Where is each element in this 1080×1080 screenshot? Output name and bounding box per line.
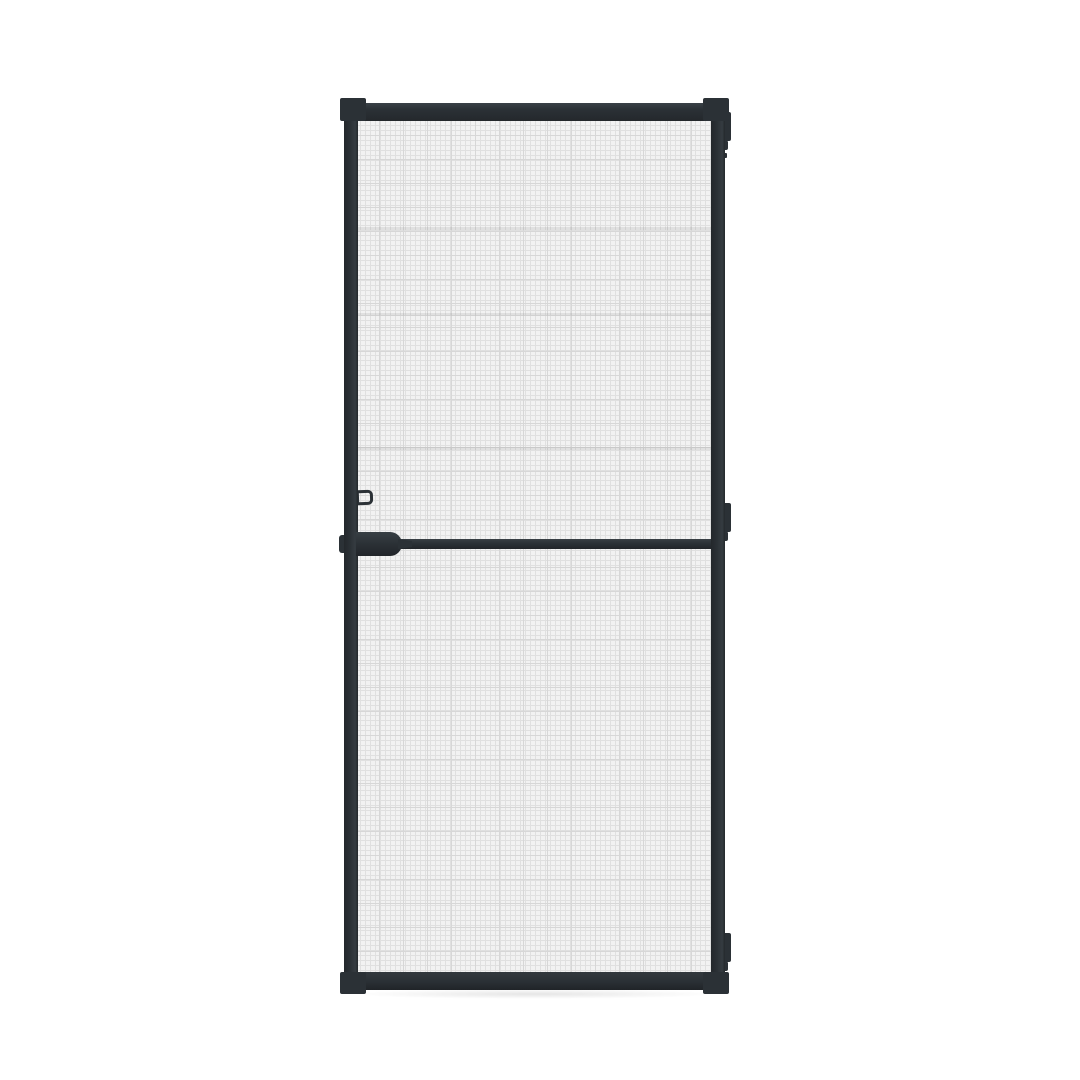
mesh-texture-band xyxy=(355,447,714,450)
mesh-texture-band xyxy=(355,227,714,230)
screen-door xyxy=(344,103,725,991)
mesh-texture-band xyxy=(355,313,714,316)
door-drop-shadow xyxy=(350,989,719,999)
corner-cap-bottom-left xyxy=(340,972,366,994)
corner-cap-top-right xyxy=(703,98,729,121)
product-photo-canvas xyxy=(0,0,1080,1080)
frame-rail-bottom xyxy=(352,972,717,990)
corner-cap-top-left xyxy=(340,98,366,121)
latch-keeper-loop xyxy=(356,490,374,506)
corner-cap-bottom-right xyxy=(703,972,729,994)
handle-grip xyxy=(356,532,402,556)
frame-stile-right xyxy=(711,109,725,985)
frame-rail-top xyxy=(352,103,717,121)
